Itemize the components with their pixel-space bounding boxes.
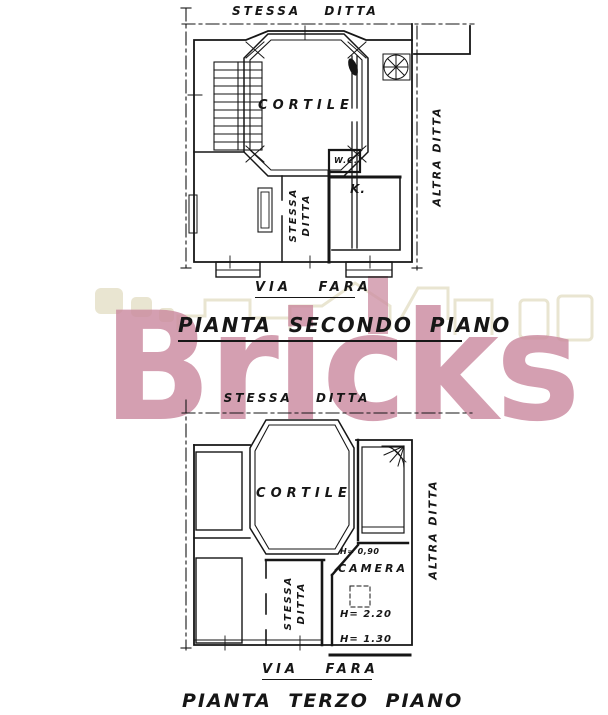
outer-walls-secondo bbox=[194, 24, 470, 262]
courtyard-label-secondo: CORTILE bbox=[252, 98, 360, 113]
camera-dashed-hatch bbox=[350, 586, 370, 607]
street-label-terzo: VIA FARA bbox=[262, 662, 372, 680]
courtyard-label-terzo: CORTILE bbox=[250, 486, 358, 501]
balconies-secondo bbox=[216, 262, 392, 277]
wc-label: W.C. bbox=[333, 156, 359, 165]
spiral-stair-terzo bbox=[382, 446, 406, 468]
unit-vertical-label-terzo: STESSA DITTA bbox=[282, 570, 308, 636]
height-note-door: H= 0,90 bbox=[340, 547, 376, 556]
boundary-right-label-terzo: ALTRA DITTA bbox=[427, 460, 440, 600]
street-label-secondo: VIA FARA bbox=[255, 280, 355, 298]
boundary-top-label-secondo: STESSA DITTA bbox=[232, 4, 367, 18]
door-leaf-mark bbox=[346, 57, 360, 77]
height-note-low: H= 1.30 bbox=[340, 634, 384, 645]
camera-label: CAMERA bbox=[338, 562, 402, 575]
spiral-stair-secondo bbox=[383, 54, 410, 80]
kitchen-label: K. bbox=[348, 182, 368, 196]
vertical-label-line1: STESSA bbox=[282, 570, 295, 636]
caption-terzo-piano: PIANTA TERZO PIANO bbox=[182, 690, 428, 712]
vertical-label-line1: STESSA bbox=[287, 182, 300, 248]
vertical-label-line2: DITTA bbox=[300, 182, 313, 248]
boundary-top-label-terzo: STESSA DITTA bbox=[222, 391, 372, 405]
boundary-right-label-secondo: ALTRA DITTA bbox=[431, 97, 444, 217]
floor-plan-sheet: Bricks bbox=[0, 0, 608, 715]
unit-vertical-label-secondo: STESSA DITTA bbox=[287, 182, 313, 248]
height-note-ceiling: H= 2.20 bbox=[340, 609, 384, 620]
vertical-label-line2: DITTA bbox=[295, 570, 308, 636]
left-rooms-terzo bbox=[194, 452, 250, 643]
caption-secondo-piano: PIANTA SECONDO PIANO bbox=[178, 313, 462, 342]
